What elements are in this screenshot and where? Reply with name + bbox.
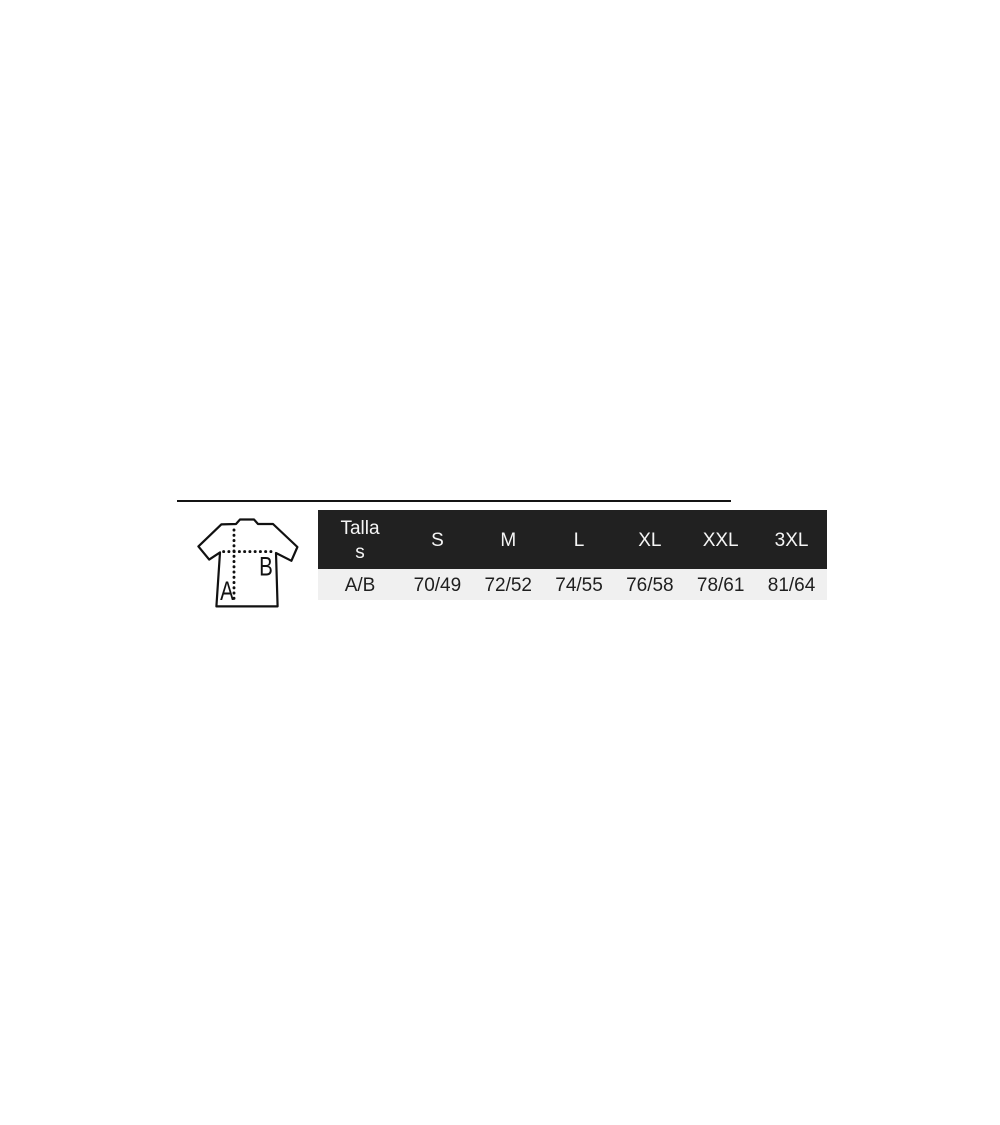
svg-text:A: A <box>220 576 234 606</box>
svg-text:B: B <box>259 552 273 582</box>
